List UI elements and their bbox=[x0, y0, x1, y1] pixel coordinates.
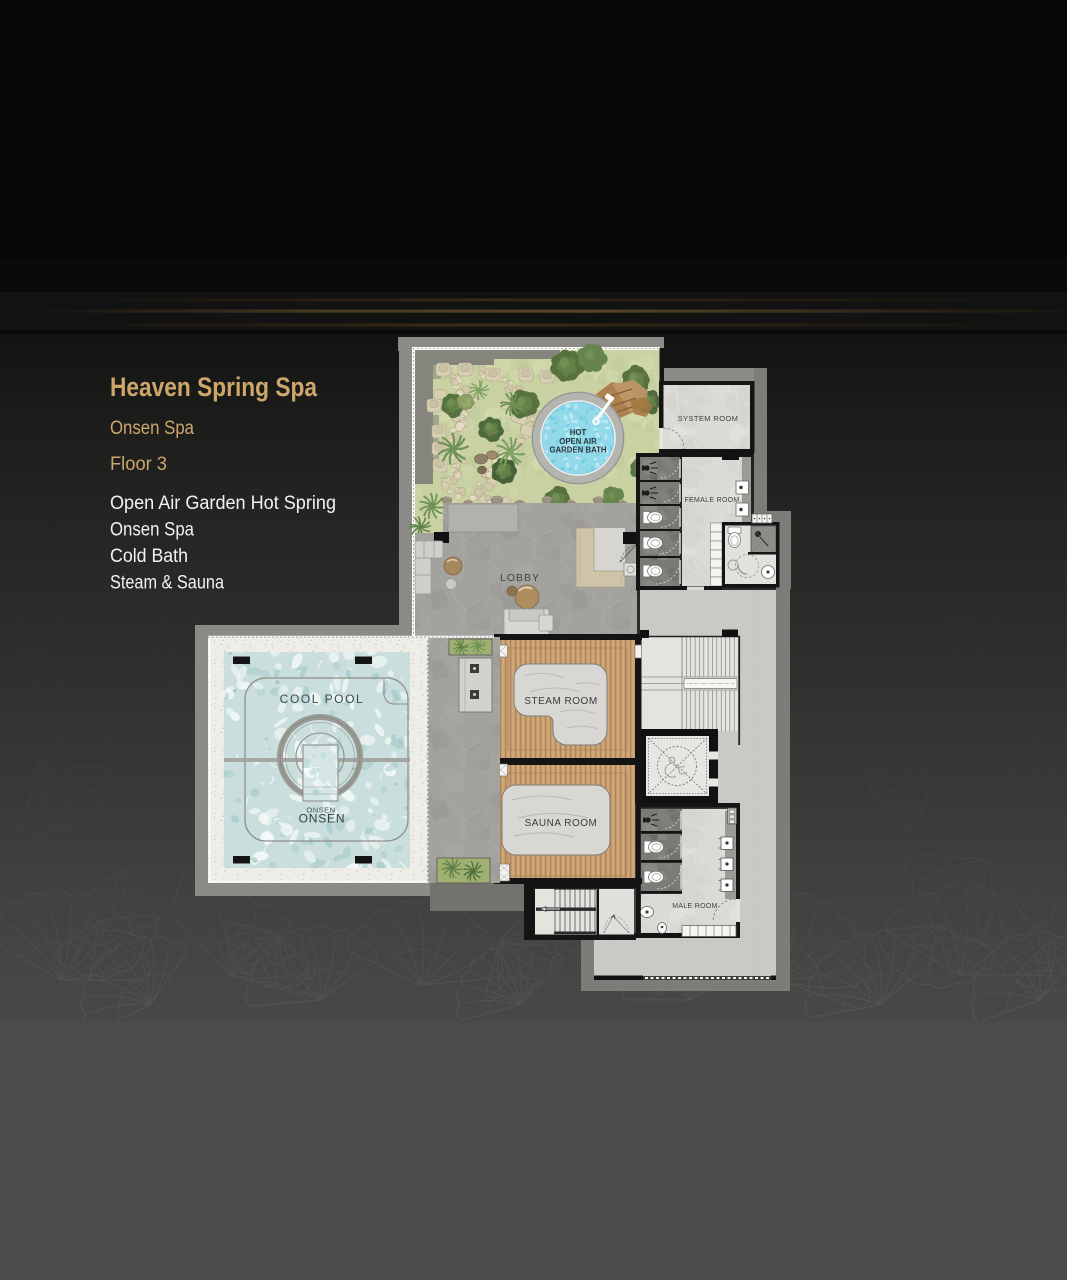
svg-text:HOT: HOT bbox=[570, 428, 587, 437]
svg-text:MALE ROOM: MALE ROOM bbox=[672, 903, 717, 910]
svg-text:FEMALE ROOM: FEMALE ROOM bbox=[684, 497, 739, 504]
svg-text:Cold Bath: Cold Bath bbox=[110, 546, 188, 567]
svg-text:Floor 3: Floor 3 bbox=[110, 454, 167, 475]
svg-text:LOBBY: LOBBY bbox=[500, 572, 540, 584]
svg-text:Open Air Garden Hot Spring: Open Air Garden Hot Spring bbox=[110, 493, 336, 514]
svg-text:STEAM ROOM: STEAM ROOM bbox=[524, 696, 597, 707]
svg-text:Onsen Spa: Onsen Spa bbox=[110, 418, 194, 439]
svg-text:GARDEN BATH: GARDEN BATH bbox=[549, 446, 606, 455]
svg-text:ONSEN: ONSEN bbox=[299, 812, 346, 826]
svg-text:SYSTEM ROOM: SYSTEM ROOM bbox=[678, 414, 739, 423]
svg-text:Steam & Sauna: Steam & Sauna bbox=[110, 573, 224, 594]
svg-text:Heaven Spring Spa: Heaven Spring Spa bbox=[110, 372, 318, 402]
svg-text:Onsen Spa: Onsen Spa bbox=[110, 520, 194, 541]
svg-text:SAUNA ROOM: SAUNA ROOM bbox=[525, 818, 598, 829]
svg-text:COOL POOL: COOL POOL bbox=[280, 692, 365, 706]
